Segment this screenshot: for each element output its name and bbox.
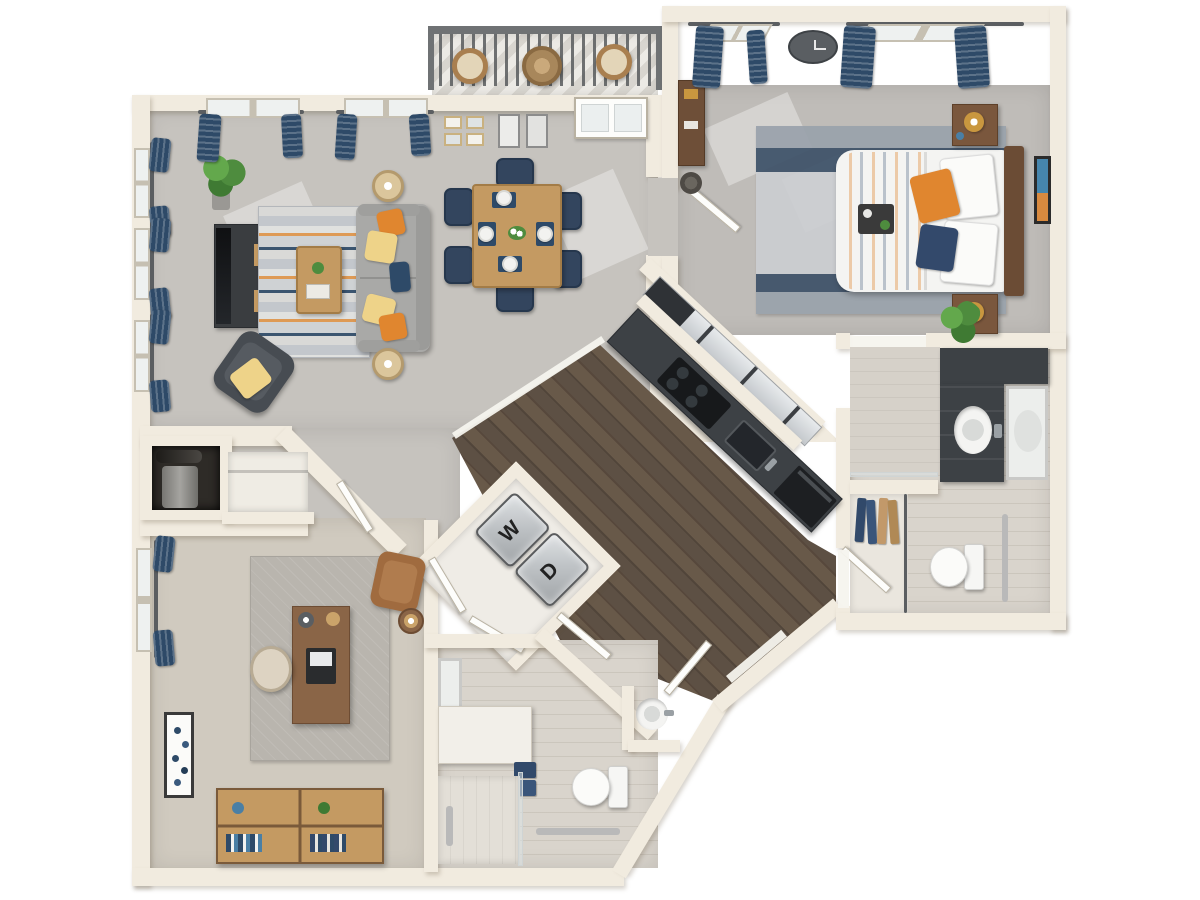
floor-lamp [372, 170, 404, 202]
wall-bedroom-top [662, 6, 1066, 22]
plate [502, 256, 518, 272]
window [134, 320, 150, 392]
corridor-floor-opening [648, 178, 678, 256]
curtain [148, 137, 171, 173]
wall-bottom-outer [132, 868, 624, 886]
shower-tile [850, 347, 940, 475]
wall-sink-niche [628, 740, 680, 752]
sofa-pillow-navy [389, 261, 412, 293]
office-art-frame [164, 712, 194, 798]
wall-bedroom-left [662, 6, 678, 188]
toilet-bowl [572, 768, 610, 806]
coat-closet-interior [228, 452, 308, 512]
window [134, 148, 150, 218]
wall-corridor-living [646, 95, 662, 177]
tray-cup [863, 209, 872, 218]
bedroom-art-frame [1034, 156, 1051, 224]
breakfast-tray [858, 204, 894, 234]
coffee-table-tray [306, 284, 330, 299]
wall-right-outer [1050, 6, 1066, 630]
curtain [746, 29, 768, 84]
floor-plan: W D [0, 0, 1200, 900]
sofa-pillow-orange [378, 312, 408, 342]
curtain [954, 25, 990, 89]
basket [680, 172, 702, 194]
curtain [692, 25, 724, 89]
toilet-bowl [930, 547, 968, 587]
bath1-vanity [940, 348, 1048, 384]
water-heater-pipe [156, 450, 202, 463]
books [226, 834, 262, 852]
wall-clock [788, 30, 838, 64]
tray-plant [880, 220, 890, 230]
bath1-sink [954, 406, 992, 454]
headboard [1004, 146, 1024, 296]
curtain [196, 113, 221, 162]
curtain [281, 114, 303, 159]
bathroom1-threshold [838, 550, 849, 608]
floor-lamp [372, 348, 404, 380]
art-dot [182, 741, 189, 748]
coat-closet-shelf [228, 470, 308, 473]
grab-bar [1002, 514, 1008, 602]
bedroom-plant [938, 300, 984, 344]
laptop-screen [310, 652, 332, 666]
balcony-sliding-door [574, 97, 648, 139]
balcony-railing [428, 26, 662, 34]
bath2-vanity [438, 706, 532, 764]
window [134, 228, 150, 300]
curtain [334, 113, 357, 160]
dining-chair [444, 246, 474, 284]
plate [478, 226, 494, 242]
office-chair [250, 646, 292, 692]
tv [216, 228, 231, 324]
dresser-decor [684, 121, 698, 129]
door-glass [614, 104, 642, 132]
balcony-table [522, 46, 562, 86]
bookshelf [216, 788, 384, 864]
art-dot [174, 727, 181, 734]
gallery-frame [466, 133, 484, 146]
curtain [149, 217, 172, 253]
dining-chair [444, 188, 474, 226]
washer-label: W [495, 516, 526, 547]
gallery-frame [444, 116, 462, 129]
books [310, 834, 346, 852]
curtain [152, 535, 176, 573]
curtain [152, 629, 175, 667]
centerpiece-flowers [508, 226, 526, 240]
wall-bath1-bottom [836, 613, 1066, 630]
art-frame [526, 114, 548, 148]
table-lamp [964, 112, 984, 132]
wall-bedroom-bottom [836, 333, 850, 349]
gallery-frame [466, 116, 484, 129]
balcony-railing-left [428, 26, 434, 90]
dryer-label: D [536, 558, 564, 586]
bedroom-bath-threshold [850, 336, 926, 347]
wall-bath1-left [836, 408, 850, 548]
door-glass [581, 104, 609, 132]
shelf-decor [318, 802, 330, 814]
sink-faucet-icon [994, 424, 1002, 438]
art-frame [498, 114, 520, 148]
gallery-frame [444, 133, 462, 146]
grab-bar [446, 806, 453, 846]
shelf-decor [232, 802, 244, 814]
sofa-pillow-yellow [364, 230, 398, 264]
grab-bar [536, 828, 620, 835]
sink-reflection [1014, 410, 1042, 452]
water-heater [162, 466, 198, 508]
shower-glass [850, 472, 938, 477]
art-dot [174, 779, 181, 786]
balcony-chair [596, 44, 632, 80]
plate [537, 226, 553, 242]
sink-faucet-icon [664, 710, 674, 716]
window [136, 548, 152, 652]
plate [496, 190, 512, 206]
wall-bath2-top [424, 634, 546, 648]
nightstand-cup [956, 132, 964, 140]
bed-pillow-navy [915, 224, 959, 273]
oven-handle [797, 470, 832, 503]
desk-lamp [298, 612, 314, 628]
art-dot [181, 767, 188, 774]
chair-cushion [377, 559, 419, 605]
art-dot [172, 755, 179, 762]
clock-hand [814, 48, 826, 50]
wall-bath1-divider [850, 480, 938, 494]
toilet-tank [608, 766, 628, 808]
side-table-lamp [404, 614, 418, 628]
dresser-decor [684, 89, 698, 99]
dresser [678, 80, 705, 166]
coat-closet-wall [222, 512, 314, 524]
sofa-back [416, 206, 430, 350]
balcony-chair [452, 48, 488, 84]
curtain [148, 309, 171, 345]
coffee-table-plant [312, 262, 324, 274]
closet-rod [904, 494, 907, 613]
shower-glass [518, 772, 523, 866]
curtain [840, 25, 876, 89]
curtain [409, 113, 432, 156]
laptop [306, 648, 336, 684]
curtain [149, 379, 172, 413]
coffee-table [296, 246, 342, 314]
desk-clock [326, 612, 340, 626]
